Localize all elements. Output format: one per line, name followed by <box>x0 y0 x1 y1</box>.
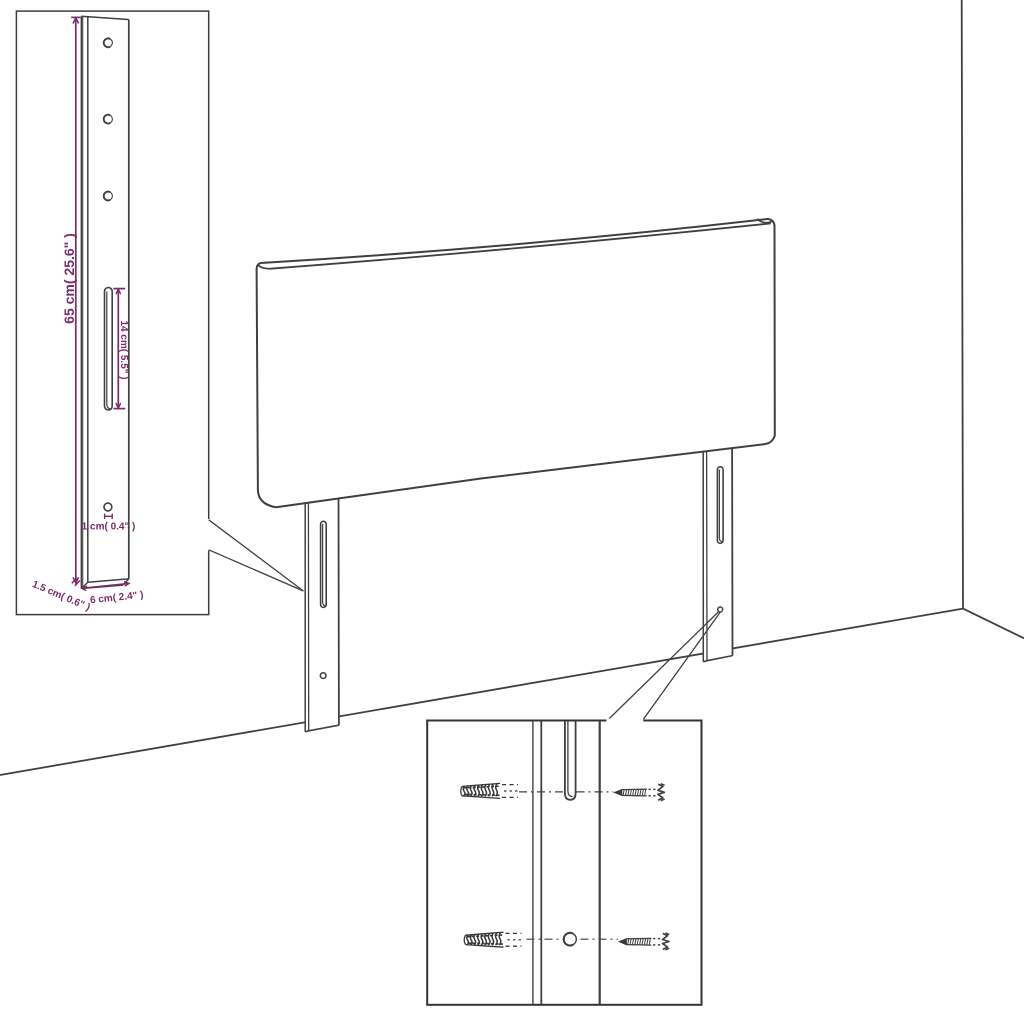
svg-text:1 cm( 0.4" ): 1 cm( 0.4" ) <box>82 522 136 533</box>
svg-text:65 cm( 25.6" ): 65 cm( 25.6" ) <box>61 233 77 324</box>
svg-text:14 cm( 5.5" ): 14 cm( 5.5" ) <box>118 320 129 379</box>
